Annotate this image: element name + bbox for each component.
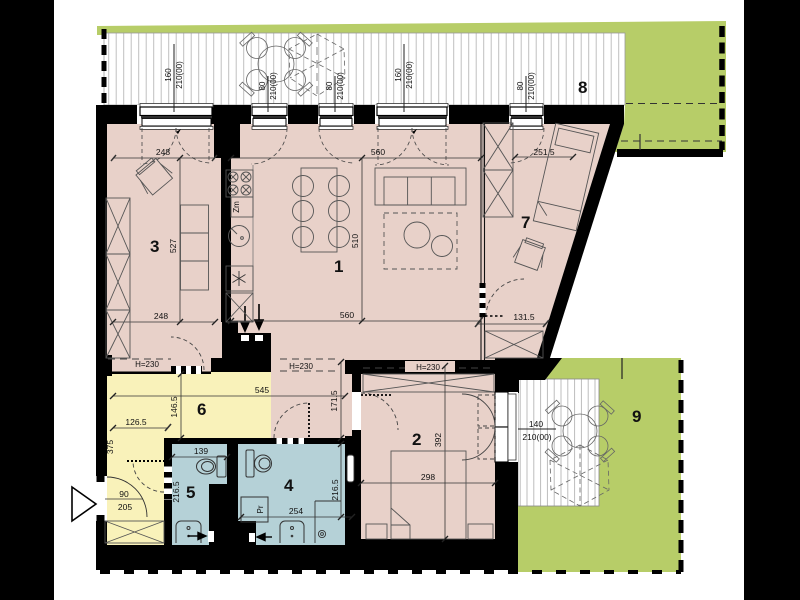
svg-text:210(00): 210(00)	[269, 72, 278, 100]
svg-text:8: 8	[578, 78, 587, 97]
svg-text:527: 527	[168, 239, 178, 253]
svg-text:Pr: Pr	[256, 505, 265, 513]
svg-text:4: 4	[284, 476, 294, 495]
svg-text:126.5: 126.5	[125, 417, 147, 427]
svg-text:Zm: Zm	[232, 201, 241, 213]
svg-text:160: 160	[164, 68, 173, 82]
svg-text:210(00): 210(00)	[175, 61, 184, 89]
svg-text:205: 205	[118, 502, 132, 512]
svg-text:1: 1	[334, 257, 343, 276]
svg-text:210(00): 210(00)	[522, 432, 551, 442]
svg-text:3: 3	[150, 237, 159, 256]
svg-text:H=230: H=230	[416, 363, 440, 372]
svg-text:251.5: 251.5	[533, 147, 555, 157]
svg-text:5: 5	[186, 483, 195, 502]
svg-text:146.5: 146.5	[169, 396, 179, 418]
svg-text:90: 90	[119, 489, 129, 499]
svg-text:140: 140	[529, 419, 543, 429]
svg-text:545: 545	[255, 385, 269, 395]
svg-text:9: 9	[632, 407, 641, 426]
svg-text:H=230: H=230	[135, 360, 159, 369]
svg-text:H=230: H=230	[289, 362, 313, 371]
svg-text:171.5: 171.5	[329, 390, 339, 412]
svg-text:510: 510	[350, 234, 360, 248]
svg-text:80: 80	[258, 81, 267, 90]
svg-text:2: 2	[412, 430, 421, 449]
svg-text:210(00): 210(00)	[336, 72, 345, 100]
svg-text:6: 6	[197, 400, 206, 419]
svg-text:375: 375	[105, 440, 115, 454]
svg-text:298: 298	[421, 472, 435, 482]
svg-text:210(00): 210(00)	[405, 61, 414, 89]
svg-text:560: 560	[340, 310, 354, 320]
svg-text:216.5: 216.5	[330, 479, 340, 501]
svg-text:392: 392	[433, 433, 443, 447]
svg-text:248: 248	[154, 311, 168, 321]
svg-text:254: 254	[289, 506, 303, 516]
svg-text:248: 248	[156, 147, 170, 157]
svg-text:80: 80	[516, 81, 525, 90]
svg-text:160: 160	[394, 68, 403, 82]
svg-text:560: 560	[371, 147, 385, 157]
svg-text:210(00): 210(00)	[527, 72, 536, 100]
svg-text:216.5: 216.5	[171, 481, 181, 503]
svg-text:7: 7	[521, 213, 530, 232]
svg-text:131.5: 131.5	[513, 312, 535, 322]
svg-text:80: 80	[325, 81, 334, 90]
svg-text:139: 139	[194, 446, 208, 456]
